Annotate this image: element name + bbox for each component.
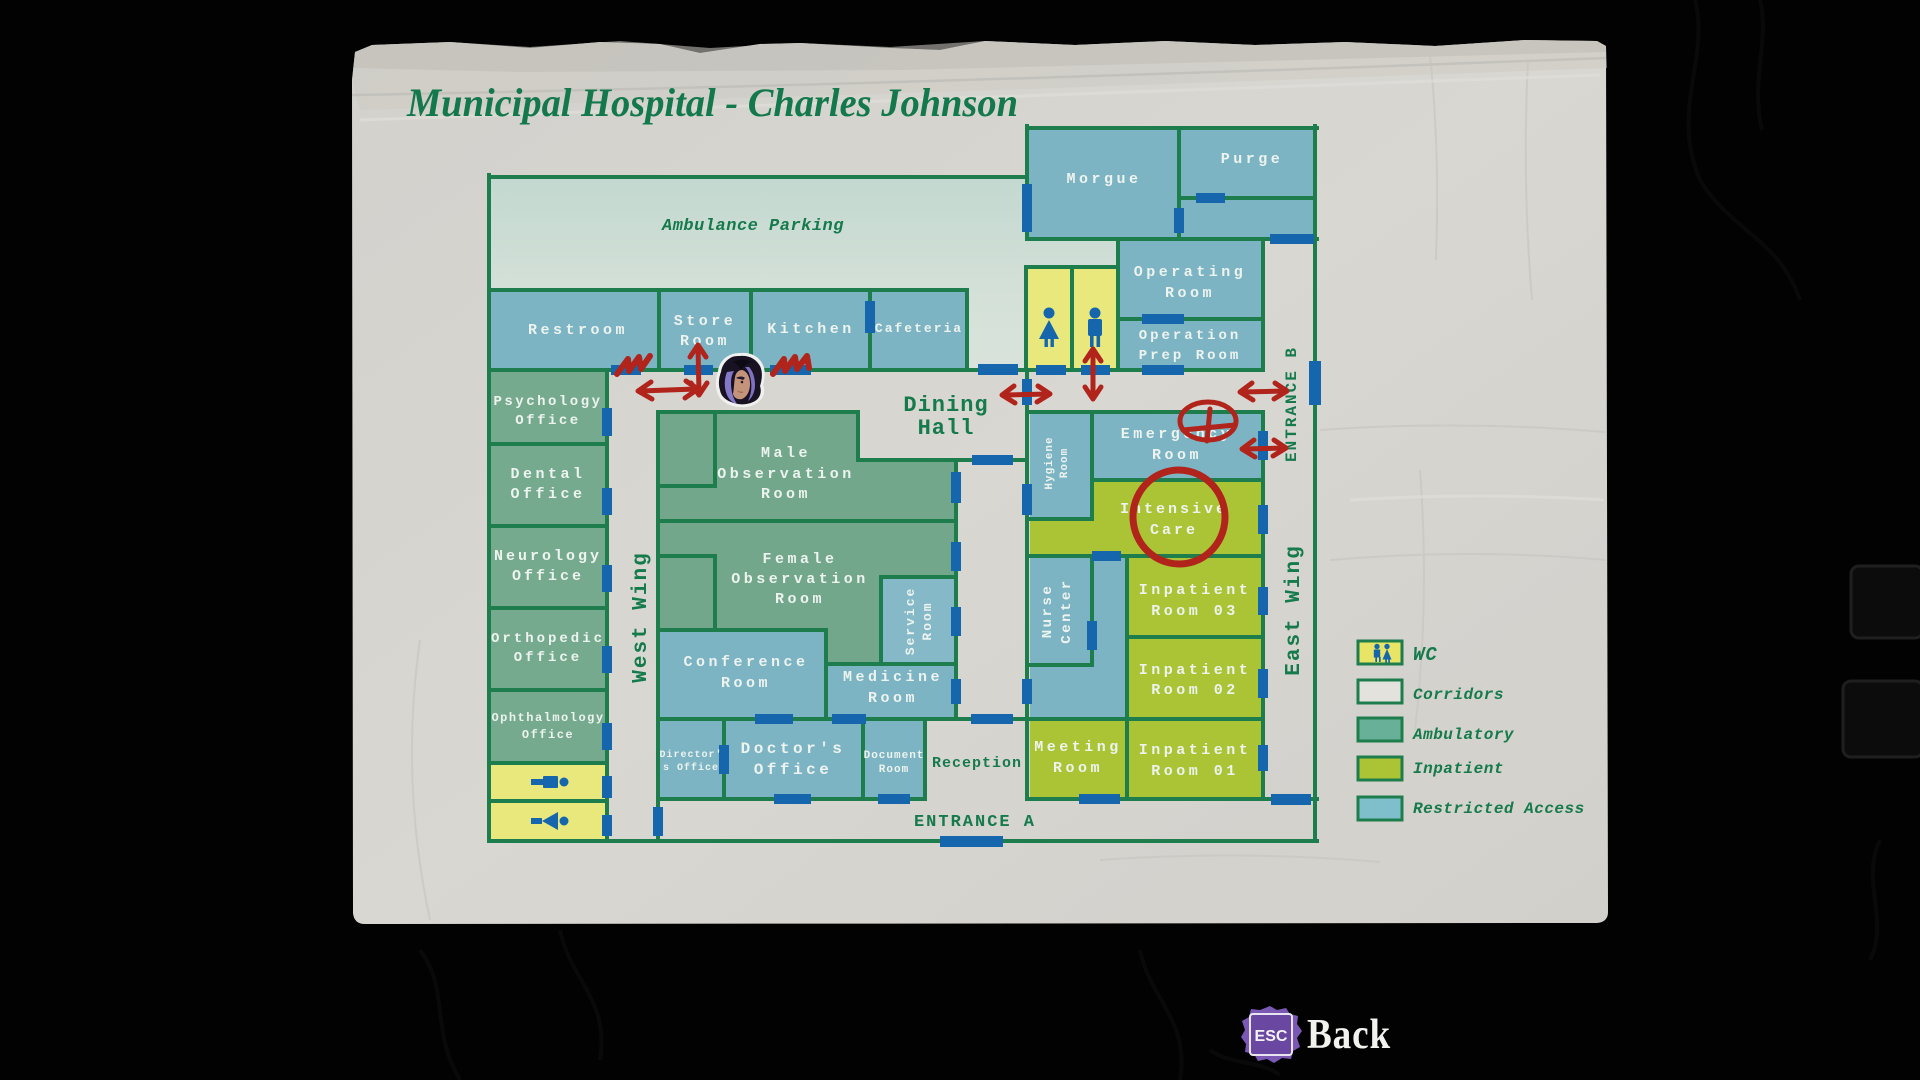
- svg-text:Document: Document: [864, 750, 925, 762]
- svg-text:Hygiene: Hygiene: [1044, 436, 1056, 489]
- svg-text:s Office: s Office: [663, 762, 719, 774]
- svg-text:West Wing: West Wing: [630, 551, 653, 682]
- svg-text:Psychology: Psychology: [493, 394, 602, 410]
- svg-text:Inpatient: Inpatient: [1413, 760, 1504, 778]
- svg-text:Room: Room: [721, 675, 771, 692]
- svg-text:Room: Room: [920, 601, 935, 640]
- svg-text:Morgue: Morgue: [1066, 171, 1141, 188]
- svg-text:Nurse: Nurse: [1040, 584, 1056, 639]
- svg-text:Center: Center: [1059, 578, 1075, 643]
- svg-text:Conference: Conference: [683, 654, 808, 671]
- svg-text:Operating: Operating: [1134, 264, 1247, 281]
- svg-text:Meeting: Meeting: [1034, 739, 1122, 756]
- svg-text:Office: Office: [515, 413, 580, 429]
- svg-text:Office: Office: [522, 728, 574, 742]
- svg-text:Kitchen: Kitchen: [767, 321, 855, 338]
- svg-text:Ambulatory: Ambulatory: [1412, 726, 1515, 744]
- svg-text:Room 03: Room 03: [1151, 603, 1239, 620]
- svg-text:Hall: Hall: [918, 416, 975, 441]
- svg-text:Municipal Hospital - Charles J: Municipal Hospital - Charles Johnson: [406, 80, 1018, 125]
- svg-text:Operation: Operation: [1139, 328, 1242, 344]
- svg-text:ENTRANCE A: ENTRANCE A: [914, 813, 1036, 832]
- svg-text:Restroom: Restroom: [528, 322, 628, 339]
- svg-text:WC: WC: [1413, 644, 1438, 666]
- svg-text:Ambulance Parking: Ambulance Parking: [661, 217, 844, 236]
- svg-text:Inpatient: Inpatient: [1139, 582, 1252, 599]
- svg-text:Orthopedic: Orthopedic: [491, 631, 605, 647]
- svg-text:East Wing: East Wing: [1283, 544, 1306, 675]
- svg-text:Store: Store: [674, 313, 737, 330]
- svg-text:Reception: Reception: [932, 755, 1022, 772]
- svg-text:Room: Room: [1165, 285, 1215, 302]
- svg-text:Cafeteria: Cafeteria: [875, 321, 963, 336]
- svg-text:Room: Room: [868, 690, 918, 707]
- svg-text:Back: Back: [1307, 1012, 1391, 1058]
- svg-text:Dental: Dental: [510, 466, 585, 483]
- svg-text:Male: Male: [761, 445, 811, 462]
- svg-text:Corridors: Corridors: [1413, 686, 1504, 704]
- svg-text:Inpatient: Inpatient: [1139, 662, 1252, 679]
- svg-text:Prep Room: Prep Room: [1139, 348, 1242, 364]
- svg-text:Room: Room: [879, 764, 909, 776]
- svg-text:ENTRANCE B: ENTRANCE B: [1283, 346, 1301, 462]
- svg-text:Purge: Purge: [1221, 151, 1284, 168]
- svg-text:Director': Director': [659, 749, 722, 761]
- svg-text:Inpatient: Inpatient: [1139, 742, 1252, 759]
- svg-text:Ophthalmology: Ophthalmology: [491, 711, 604, 725]
- svg-text:Service: Service: [903, 587, 918, 656]
- svg-text:Observation: Observation: [731, 571, 869, 588]
- svg-text:Room: Room: [1059, 448, 1071, 478]
- svg-text:Room: Room: [761, 486, 811, 503]
- svg-text:Office: Office: [510, 486, 585, 503]
- svg-text:Office: Office: [754, 761, 833, 779]
- svg-text:Restricted Access: Restricted Access: [1413, 800, 1585, 818]
- svg-text:Care: Care: [1150, 522, 1198, 539]
- svg-text:Room 01: Room 01: [1151, 763, 1239, 780]
- svg-text:Neurology: Neurology: [494, 548, 602, 565]
- svg-text:Office: Office: [512, 568, 584, 585]
- svg-text:Female: Female: [762, 551, 837, 568]
- svg-text:Room: Room: [680, 333, 730, 350]
- svg-text:Room: Room: [1152, 447, 1202, 464]
- svg-text:Observation: Observation: [717, 466, 855, 483]
- svg-text:Office: Office: [514, 650, 582, 666]
- svg-text:Dining: Dining: [903, 393, 988, 418]
- svg-text:Room: Room: [775, 591, 825, 608]
- svg-text:Medicine: Medicine: [843, 669, 943, 686]
- svg-text:Room 02: Room 02: [1151, 682, 1239, 699]
- svg-text:Doctor's: Doctor's: [741, 740, 846, 758]
- svg-text:Room: Room: [1053, 760, 1103, 777]
- svg-text:ESC: ESC: [1255, 1028, 1288, 1045]
